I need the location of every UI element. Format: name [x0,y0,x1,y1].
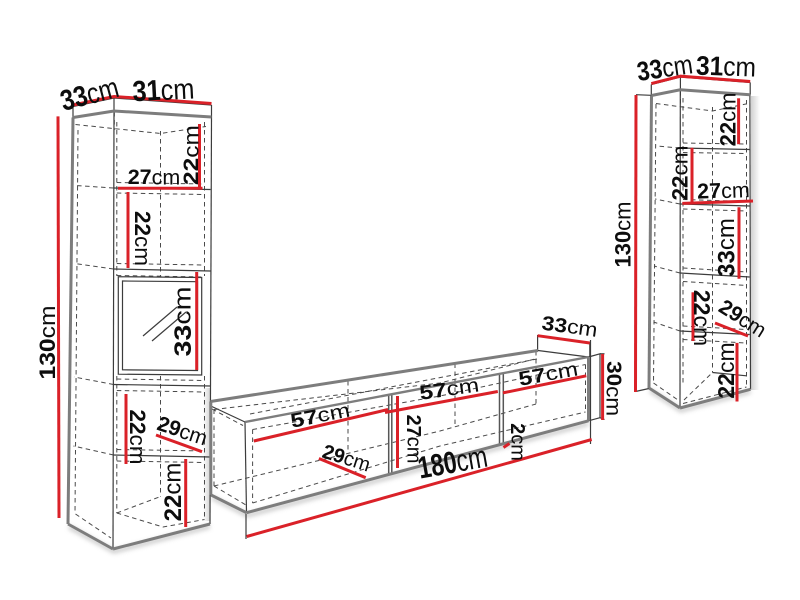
svg-text:22cm: 22cm [689,290,715,346]
svg-text:130cm: 130cm [35,306,60,380]
svg-text:33cm: 33cm [713,218,740,277]
svg-text:27cm: 27cm [128,165,181,189]
svg-text:130cm: 130cm [610,201,635,267]
svg-text:31cm: 31cm [132,73,196,108]
svg-text:22cm: 22cm [715,93,740,147]
svg-text:2cm: 2cm [506,423,528,461]
svg-text:22cm: 22cm [125,409,150,464]
svg-text:22cm: 22cm [179,125,203,185]
svg-text:33cm: 33cm [170,287,197,357]
svg-text:22cm: 22cm [713,342,739,398]
svg-text:31cm: 31cm [696,51,757,83]
svg-text:22cm: 22cm [668,145,693,200]
svg-text:30cm: 30cm [602,361,625,416]
svg-text:22cm: 22cm [160,463,187,522]
svg-text:22cm: 22cm [130,211,155,266]
svg-text:27cm: 27cm [697,178,750,204]
